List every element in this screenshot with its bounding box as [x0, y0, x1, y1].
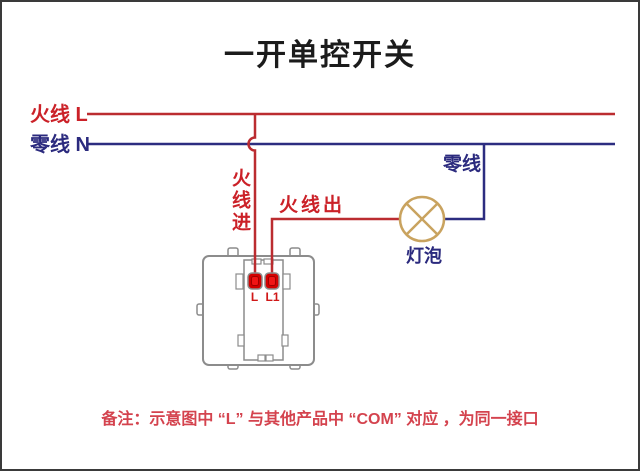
lamp-icon — [400, 197, 444, 241]
switch-notch-top-left — [252, 259, 261, 264]
live-out-wire-label: 火线出 — [279, 196, 345, 215]
neutral-branch-label: 零线 — [443, 155, 481, 174]
terminal-l1-label: L1 — [263, 291, 282, 303]
switch-clip-lower-right — [282, 335, 288, 346]
switch-clip-upper-right — [283, 274, 290, 289]
switch-clip-upper-left — [236, 274, 243, 289]
switch-notch-bottom-left — [258, 355, 265, 361]
terminal-l-label: L — [246, 291, 263, 303]
neutral-bus-label: 零线 N — [30, 135, 90, 155]
switch-body — [197, 248, 319, 369]
switch-terminal-l1 — [265, 273, 279, 289]
switch-terminal-l — [248, 273, 262, 289]
page-title: 一开单控开关 — [2, 30, 638, 74]
wiring-diagram-canvas: 一开单控开关 火线 L 零线 N 火线进 火线出 零线 灯泡 L L1 备注：示… — [0, 0, 640, 471]
live-in-wire-label: 火线进 — [230, 168, 249, 234]
live-bus-label: 火线 L — [30, 105, 88, 125]
footnote: 备注：示意图中 “L” 与其他产品中 “COM” 对应 ，为同一接口 — [2, 405, 638, 429]
switch-notch-bottom-right — [266, 355, 273, 361]
switch-clip-lower-left — [238, 335, 244, 346]
bulb-label: 灯泡 — [406, 247, 442, 265]
